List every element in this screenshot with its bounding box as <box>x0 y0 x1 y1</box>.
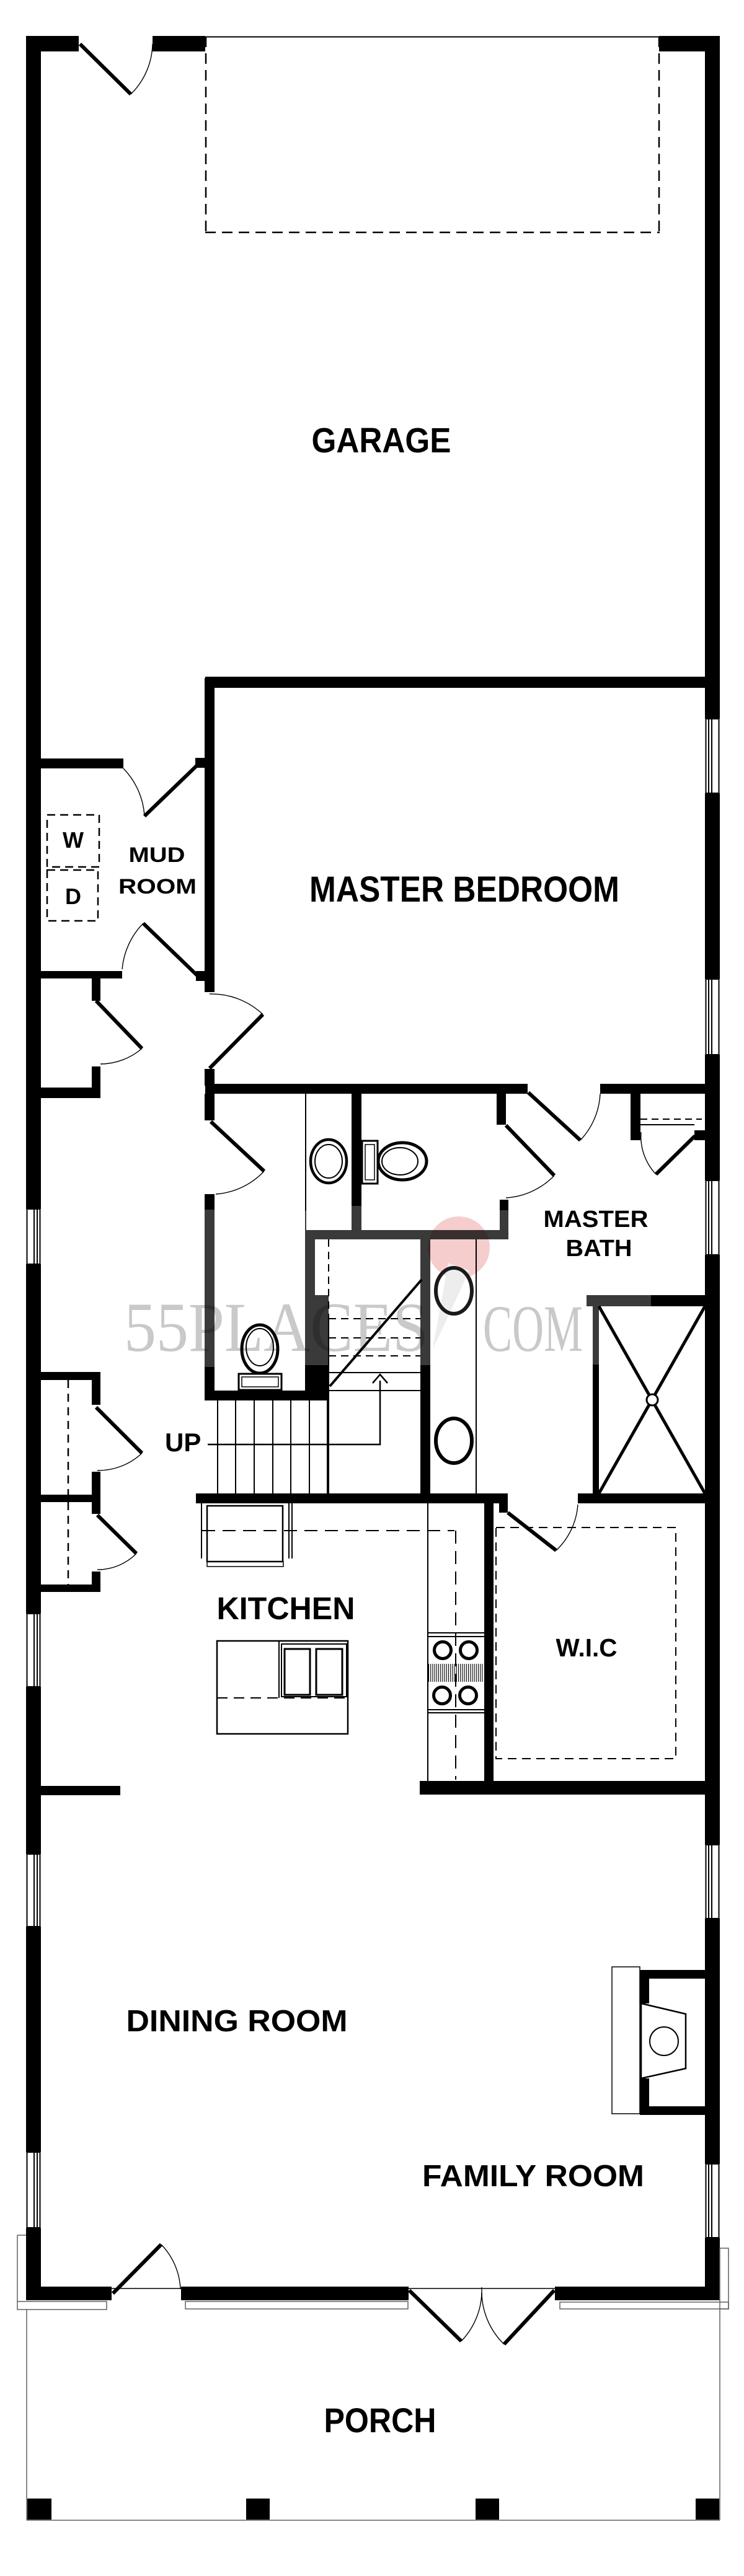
svg-text:W: W <box>63 827 84 853</box>
svg-text:DINING ROOM: DINING ROOM <box>126 2005 348 2038</box>
svg-text:PORCH: PORCH <box>324 2401 436 2440</box>
svg-text:UP: UP <box>165 1428 201 1457</box>
svg-text:COM: COM <box>483 1293 583 1366</box>
svg-text:D: D <box>65 884 81 909</box>
svg-text:MASTER BEDROOM: MASTER BEDROOM <box>309 869 619 910</box>
svg-text:BATH: BATH <box>566 1236 632 1262</box>
svg-text:MASTER: MASTER <box>544 1207 649 1233</box>
svg-text:FAMILY ROOM: FAMILY ROOM <box>422 2160 644 2193</box>
svg-text:MUD: MUD <box>129 843 185 867</box>
svg-text:W.I.C: W.I.C <box>556 1633 618 1662</box>
svg-text:55PLACES: 55PLACES <box>124 1289 428 1366</box>
svg-text:KITCHEN: KITCHEN <box>217 1591 355 1626</box>
svg-text:ROOM: ROOM <box>118 875 197 899</box>
svg-text:GARAGE: GARAGE <box>312 421 451 460</box>
